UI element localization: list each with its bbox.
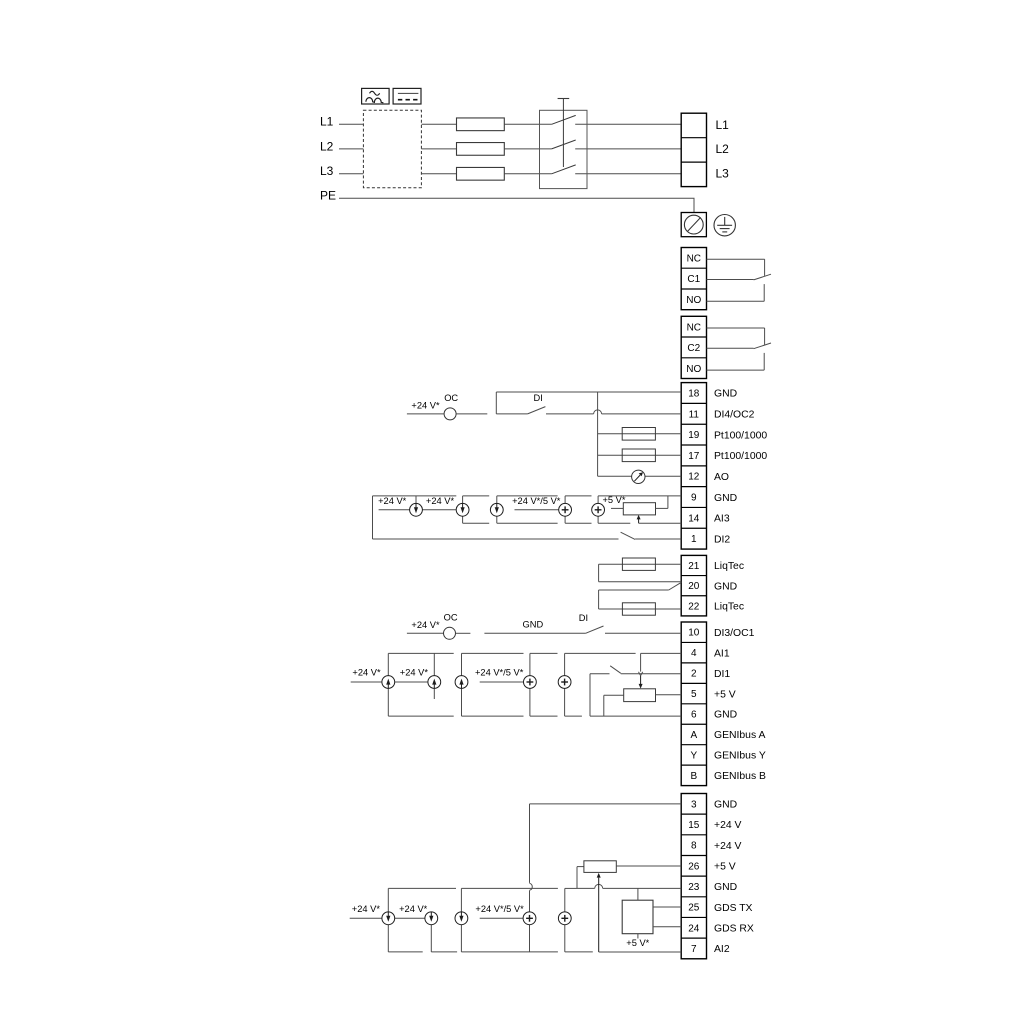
- svg-text:+5 V: +5 V: [714, 689, 736, 700]
- svg-text:+24 V*: +24 V*: [426, 496, 455, 506]
- svg-text:+24 V*: +24 V*: [378, 496, 407, 506]
- svg-text:C2: C2: [687, 343, 700, 354]
- svg-text:DI1: DI1: [714, 669, 730, 680]
- svg-text:18: 18: [688, 389, 700, 400]
- svg-text:Pt100/1000: Pt100/1000: [714, 430, 767, 441]
- svg-text:7: 7: [691, 944, 697, 955]
- svg-text:15: 15: [688, 820, 700, 831]
- svg-text:2: 2: [691, 669, 697, 680]
- svg-text:+24 V*/5 V*: +24 V*/5 V*: [475, 904, 524, 914]
- svg-text:14: 14: [688, 513, 700, 524]
- svg-text:DI3/OC1: DI3/OC1: [714, 628, 755, 639]
- svg-text:+24 V: +24 V: [714, 841, 742, 852]
- svg-text:+24 V*: +24 V*: [352, 904, 381, 914]
- svg-text:9: 9: [691, 493, 697, 504]
- svg-text:GDS RX: GDS RX: [714, 923, 754, 934]
- svg-text:+24 V*/5 V*: +24 V*/5 V*: [512, 496, 561, 506]
- svg-text:+5 V*: +5 V*: [603, 495, 626, 505]
- svg-text:L3: L3: [320, 164, 334, 178]
- svg-text:NO: NO: [686, 364, 701, 375]
- svg-text:NC: NC: [687, 254, 701, 265]
- svg-text:+24 V*/5 V*: +24 V*/5 V*: [475, 668, 524, 678]
- svg-text:GENIbus A: GENIbus A: [714, 730, 765, 741]
- svg-text:OC: OC: [444, 612, 458, 622]
- svg-text:B: B: [690, 771, 697, 782]
- svg-text:NO: NO: [686, 295, 701, 306]
- svg-text:GND: GND: [714, 581, 737, 592]
- svg-text:L1: L1: [716, 118, 730, 132]
- svg-text:AI3: AI3: [714, 514, 730, 525]
- svg-text:+24 V*: +24 V*: [411, 400, 440, 410]
- svg-text:GENIbus Y: GENIbus Y: [714, 751, 766, 762]
- svg-text:6: 6: [691, 710, 697, 721]
- svg-text:17: 17: [688, 451, 700, 462]
- svg-text:NC: NC: [687, 322, 701, 333]
- svg-text:GDS TX: GDS TX: [714, 903, 753, 914]
- svg-text:21: 21: [688, 561, 700, 572]
- svg-text:4: 4: [691, 648, 697, 659]
- svg-text:5: 5: [691, 689, 697, 700]
- svg-text:PE: PE: [320, 189, 336, 203]
- svg-text:AO: AO: [714, 472, 729, 483]
- svg-text:GND: GND: [523, 620, 544, 630]
- svg-text:DI4/OC2: DI4/OC2: [714, 410, 755, 421]
- svg-text:Pt100/1000: Pt100/1000: [714, 451, 767, 462]
- svg-text:GND: GND: [714, 800, 737, 811]
- svg-text:DI2: DI2: [714, 534, 730, 545]
- svg-text:8: 8: [691, 841, 697, 852]
- svg-text:L2: L2: [320, 139, 334, 153]
- svg-text:23: 23: [688, 882, 700, 893]
- svg-text:+24 V: +24 V: [714, 820, 742, 831]
- svg-text:+24 V*: +24 V*: [411, 620, 440, 630]
- svg-text:L2: L2: [716, 142, 730, 156]
- svg-text:OC: OC: [444, 393, 458, 403]
- svg-text:GND: GND: [714, 882, 737, 893]
- svg-text:GND: GND: [714, 493, 737, 504]
- svg-text:+24 V*: +24 V*: [352, 668, 381, 678]
- svg-text:GND: GND: [714, 710, 737, 721]
- svg-text:12: 12: [688, 472, 700, 483]
- svg-text:19: 19: [688, 430, 700, 441]
- svg-text:L3: L3: [716, 166, 730, 180]
- svg-text:+5 V: +5 V: [714, 862, 736, 873]
- svg-text:GENIbus B: GENIbus B: [714, 771, 766, 782]
- svg-text:DI: DI: [534, 393, 543, 403]
- svg-text:AI2: AI2: [714, 944, 730, 955]
- svg-text:L1: L1: [320, 115, 334, 129]
- svg-text:20: 20: [688, 581, 700, 592]
- svg-text:A: A: [690, 730, 697, 741]
- svg-text:22: 22: [688, 601, 700, 612]
- svg-text:C1: C1: [687, 274, 700, 285]
- svg-text:25: 25: [688, 903, 700, 914]
- svg-text:LiqTec: LiqTec: [714, 602, 744, 613]
- svg-text:10: 10: [688, 628, 700, 639]
- svg-text:1: 1: [691, 534, 697, 545]
- svg-text:AI1: AI1: [714, 648, 730, 659]
- svg-text:+24 V*: +24 V*: [399, 904, 428, 914]
- svg-text:GND: GND: [714, 389, 737, 400]
- svg-text:+24 V*: +24 V*: [400, 668, 429, 678]
- svg-text:26: 26: [688, 861, 700, 872]
- svg-text:Y: Y: [690, 750, 697, 761]
- svg-text:3: 3: [691, 799, 697, 810]
- svg-text:DI: DI: [579, 613, 588, 623]
- svg-text:LiqTec: LiqTec: [714, 561, 744, 572]
- svg-text:11: 11: [689, 409, 700, 420]
- svg-text:24: 24: [688, 923, 700, 934]
- svg-text:+5 V*: +5 V*: [626, 938, 649, 948]
